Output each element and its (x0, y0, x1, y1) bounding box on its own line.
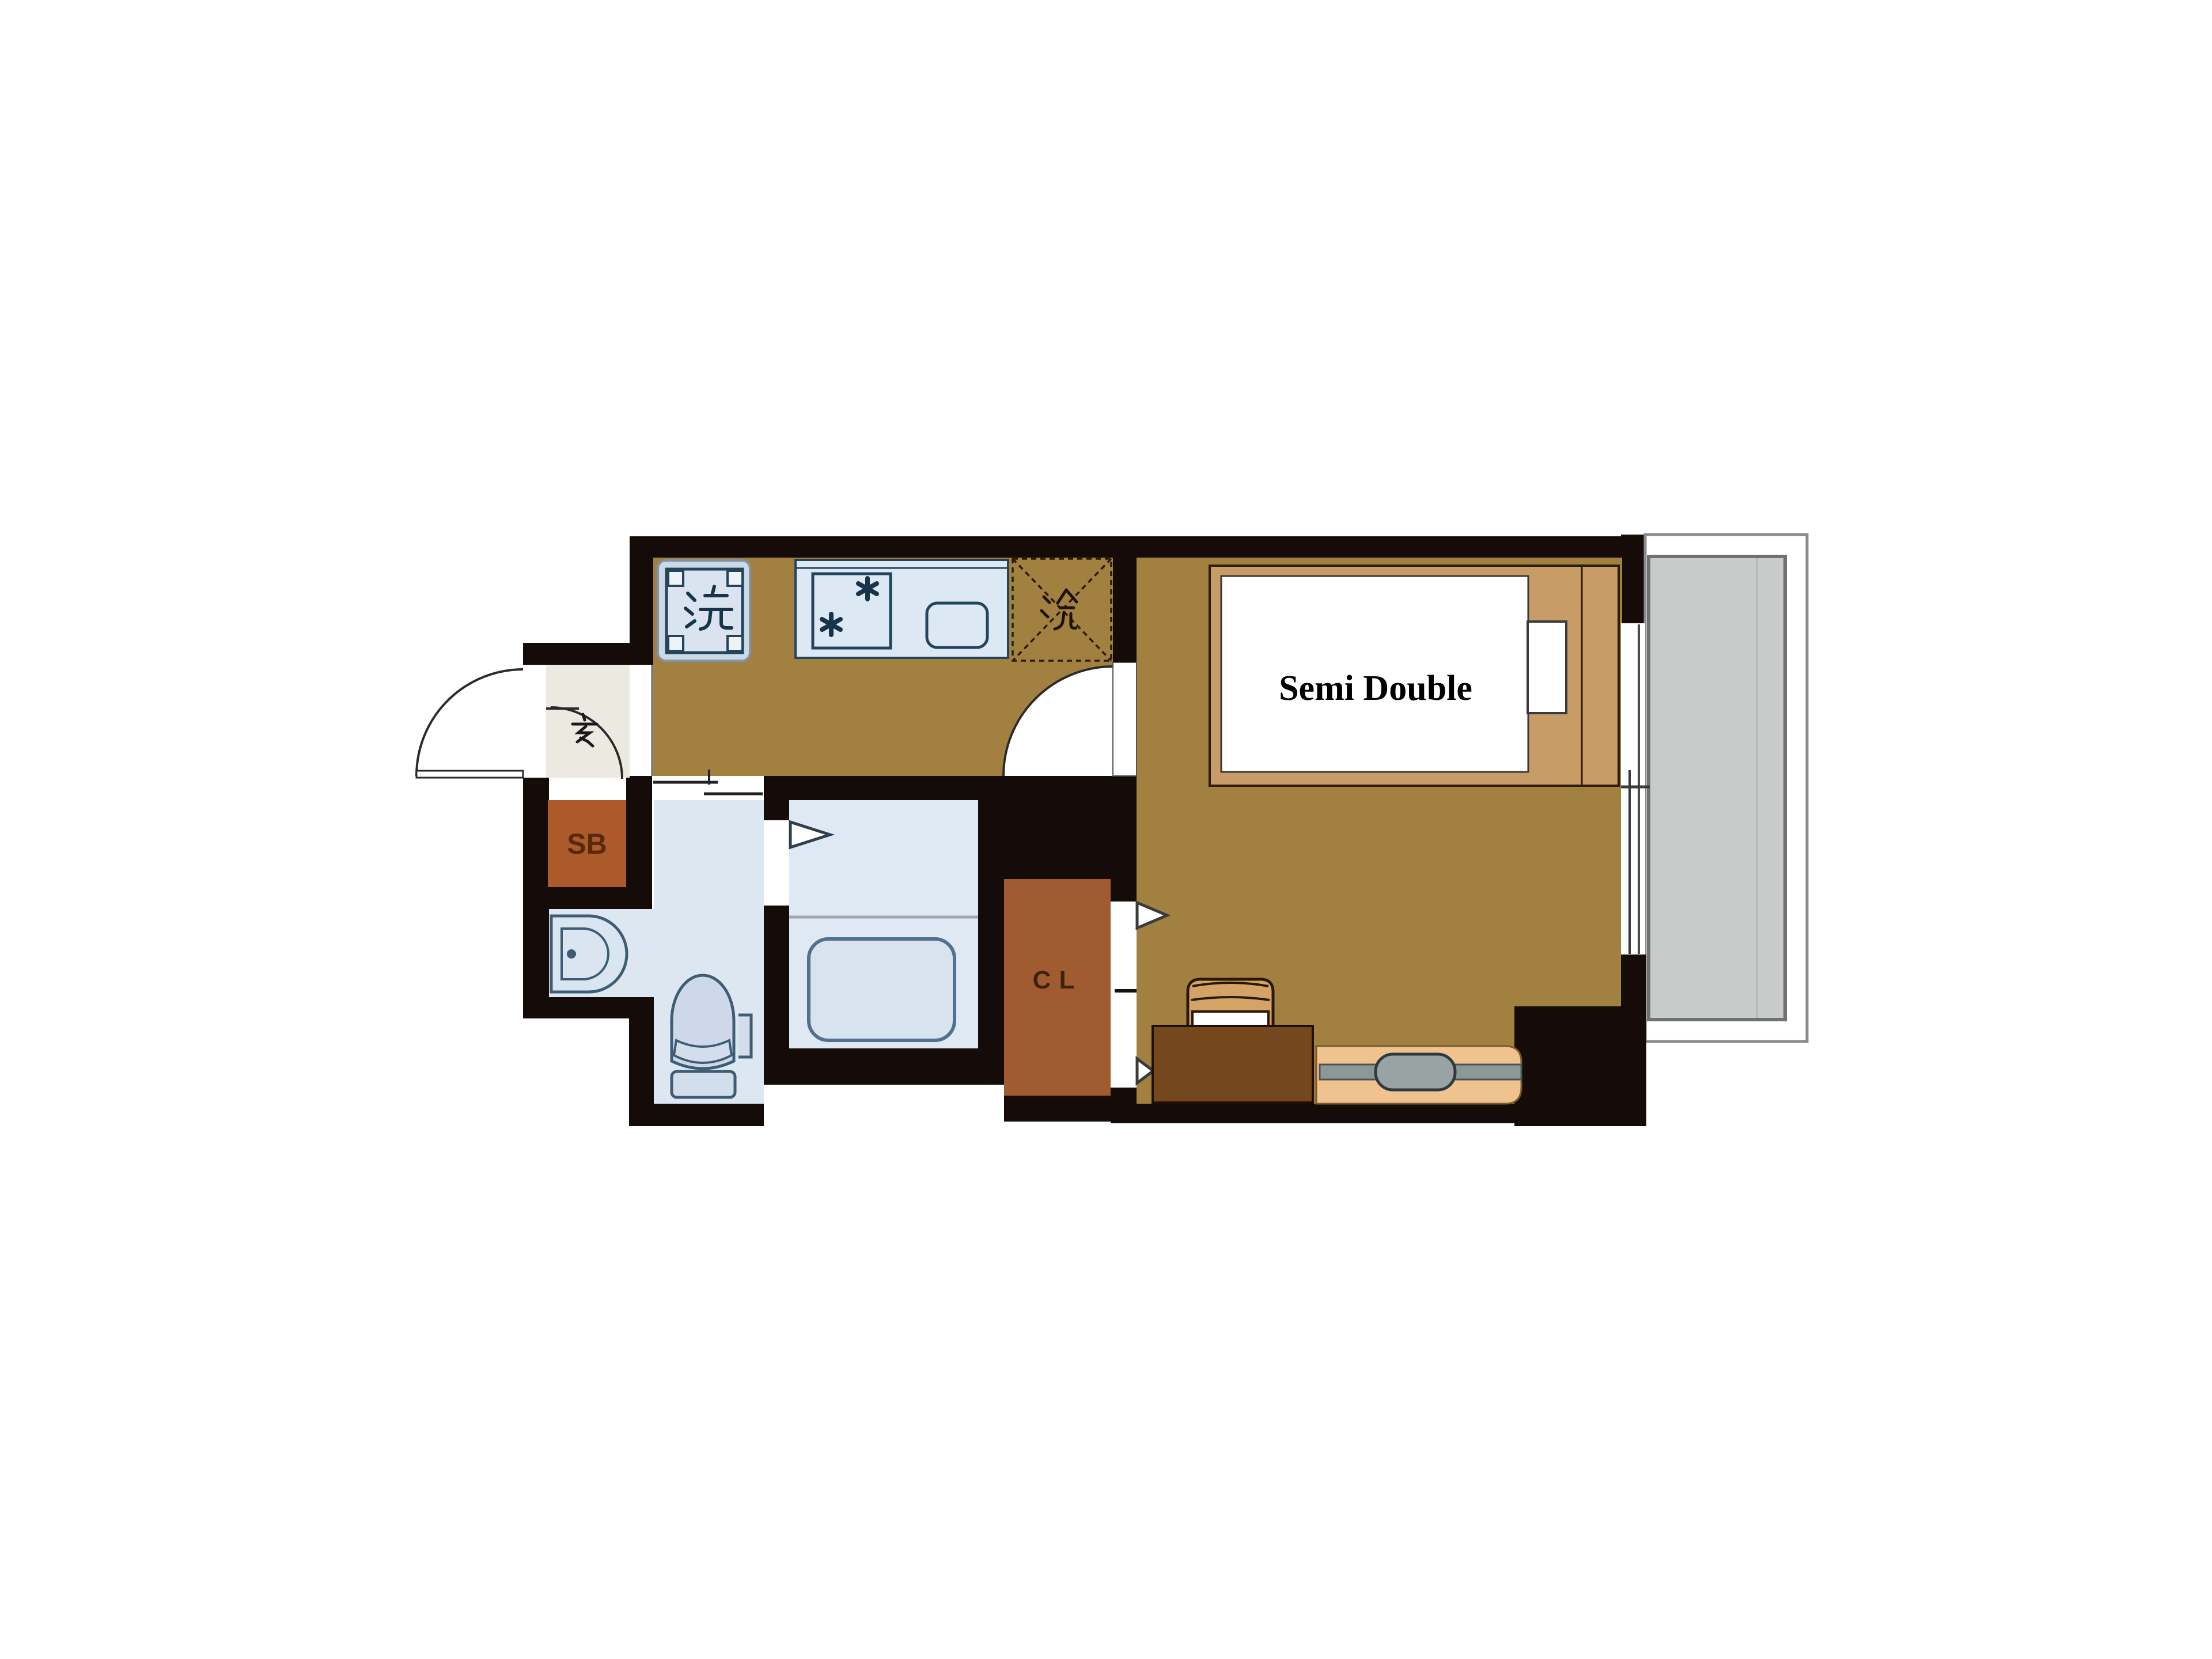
svg-text:CL: CL (1033, 966, 1083, 994)
svg-text:SB: SB (567, 828, 607, 860)
svg-text:Semi Double: Semi Double (1279, 669, 1472, 708)
